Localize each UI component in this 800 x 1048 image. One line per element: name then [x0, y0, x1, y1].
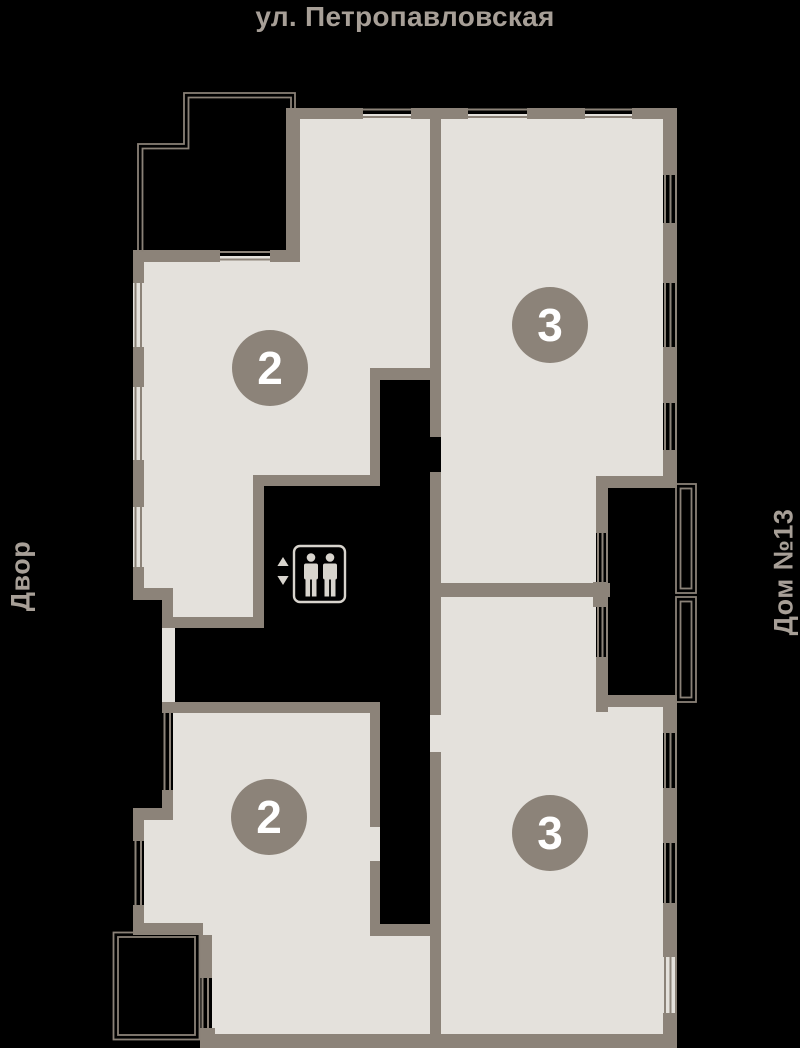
- balcony-right-lower: [676, 597, 696, 702]
- floor-plan-page: ул. Петропавловская Двор Дом №13 2 3 2 3: [0, 0, 800, 1048]
- down-triangle-icon: [277, 576, 288, 585]
- apartment-badge-top-right[interactable]: 3: [512, 287, 588, 363]
- street-label-top: ул. Петропавловская: [0, 0, 800, 34]
- elevator-people-icon: [277, 546, 345, 602]
- floor-plan-drawing: [0, 0, 800, 1048]
- balcony-right-upper: [676, 484, 696, 593]
- up-triangle-icon: [277, 557, 288, 566]
- apartment-badge-bottom-right[interactable]: 3: [512, 795, 588, 871]
- balcony-top-left: [138, 93, 295, 252]
- balcony-bottom-left: [114, 933, 200, 1040]
- apartment-badge-bottom-left[interactable]: 2: [231, 779, 307, 855]
- side-label-house-13: Дом №13: [769, 509, 800, 636]
- apartment-badge-top-left[interactable]: 2: [232, 330, 308, 406]
- side-label-courtyard: Двор: [6, 541, 37, 611]
